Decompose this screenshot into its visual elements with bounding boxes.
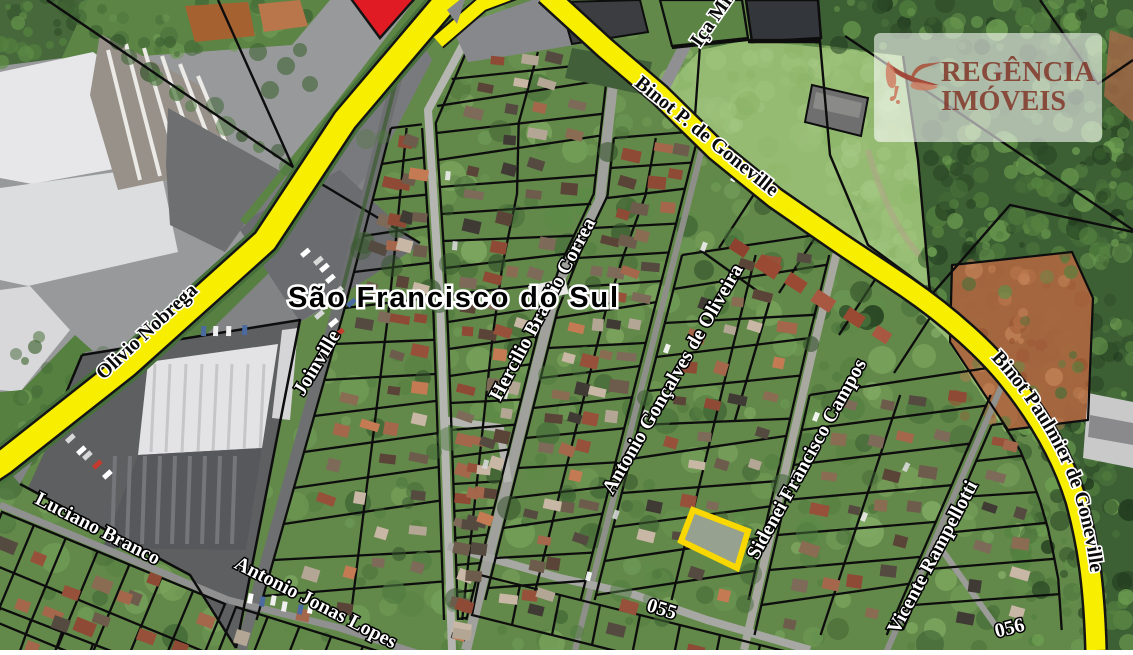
svg-text:REGÊNCIA: REGÊNCIA — [941, 55, 1095, 88]
svg-text:IMÓVEIS: IMÓVEIS — [941, 84, 1066, 117]
